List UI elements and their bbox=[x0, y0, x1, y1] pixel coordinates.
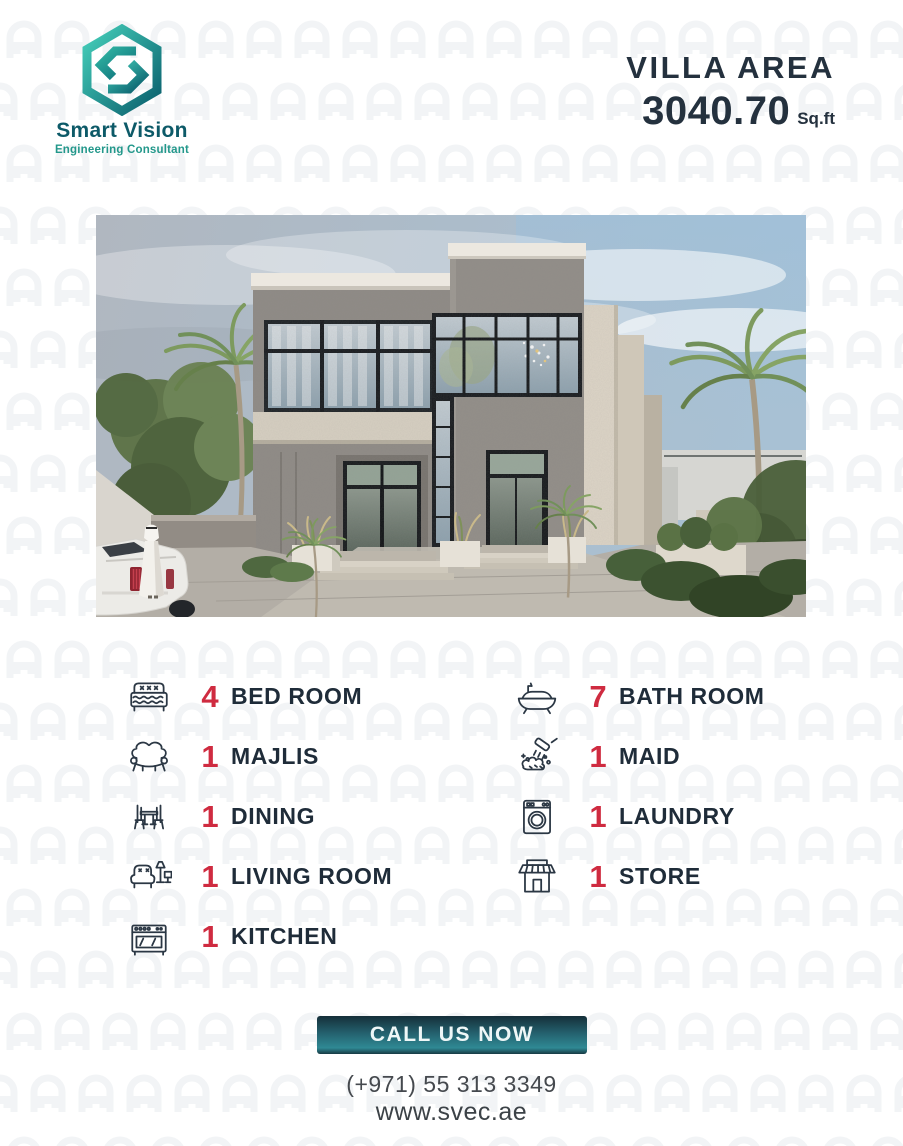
feature-laundry: 1 LAUNDRY bbox=[514, 794, 765, 839]
bathtub-icon bbox=[514, 674, 562, 720]
feature-label: BED ROOM bbox=[231, 683, 362, 710]
armchair-lamp-icon bbox=[126, 854, 174, 900]
feature-bathroom: 7 BATH ROOM bbox=[514, 674, 765, 719]
features-column-right: 7 BATH ROOM 1 MAID bbox=[514, 674, 765, 899]
storefront-icon bbox=[514, 854, 562, 900]
brand-logo: Smart Vision Engineering Consultant bbox=[50, 24, 194, 156]
feature-count: 1 bbox=[584, 859, 612, 895]
villa-area-block: VILLA AREA 3040.70Sq.ft bbox=[626, 50, 835, 134]
villa-photo bbox=[96, 215, 806, 617]
feature-count: 4 bbox=[196, 679, 224, 715]
feature-kitchen: 1 KITCHEN bbox=[126, 914, 392, 959]
call-us-now-label: CALL US NOW bbox=[370, 1023, 534, 1047]
feature-label: BATH ROOM bbox=[619, 683, 765, 710]
feature-maid: 1 MAID bbox=[514, 734, 765, 779]
dining-table-icon bbox=[126, 794, 174, 840]
feature-count: 1 bbox=[196, 859, 224, 895]
features-column-left: 4 BED ROOM 1 MAJLIS bbox=[126, 674, 392, 959]
feature-majlis: 1 MAJLIS bbox=[126, 734, 392, 779]
sofa-icon bbox=[126, 734, 174, 780]
feature-label: KITCHEN bbox=[231, 923, 337, 950]
website-url: www.svec.ae bbox=[0, 1098, 903, 1127]
washing-machine-icon bbox=[514, 794, 562, 840]
feature-count: 1 bbox=[196, 799, 224, 835]
villa-area-value: 3040.70 bbox=[642, 89, 790, 133]
call-us-now-button[interactable]: CALL US NOW bbox=[317, 1016, 587, 1054]
hexagon-s-logo-icon bbox=[70, 24, 174, 116]
feature-count: 7 bbox=[584, 679, 612, 715]
bed-icon bbox=[126, 674, 174, 720]
feature-count: 1 bbox=[584, 739, 612, 775]
stove-icon bbox=[126, 914, 174, 960]
villa-area-title: VILLA AREA bbox=[626, 50, 835, 86]
feature-count: 1 bbox=[584, 799, 612, 835]
feature-dining: 1 DINING bbox=[126, 794, 392, 839]
villa-area-unit: Sq.ft bbox=[797, 109, 835, 128]
phone-number: (+971) 55 313 3349 bbox=[0, 1071, 903, 1098]
feature-label: LIVING ROOM bbox=[231, 863, 392, 890]
feature-count: 1 bbox=[196, 919, 224, 955]
feature-living-room: 1 LIVING ROOM bbox=[126, 854, 392, 899]
feature-store: 1 STORE bbox=[514, 854, 765, 899]
feature-bedroom: 4 BED ROOM bbox=[126, 674, 392, 719]
cleaning-brush-icon bbox=[514, 734, 562, 780]
feature-label: MAJLIS bbox=[231, 743, 319, 770]
feature-label: MAID bbox=[619, 743, 680, 770]
brand-tagline: Engineering Consultant bbox=[50, 144, 194, 156]
feature-label: STORE bbox=[619, 863, 701, 890]
feature-count: 1 bbox=[196, 739, 224, 775]
brand-name: Smart Vision bbox=[50, 119, 194, 143]
flyer-page: Smart Vision Engineering Consultant VILL… bbox=[0, 0, 903, 1146]
feature-label: DINING bbox=[231, 803, 315, 830]
feature-label: LAUNDRY bbox=[619, 803, 735, 830]
